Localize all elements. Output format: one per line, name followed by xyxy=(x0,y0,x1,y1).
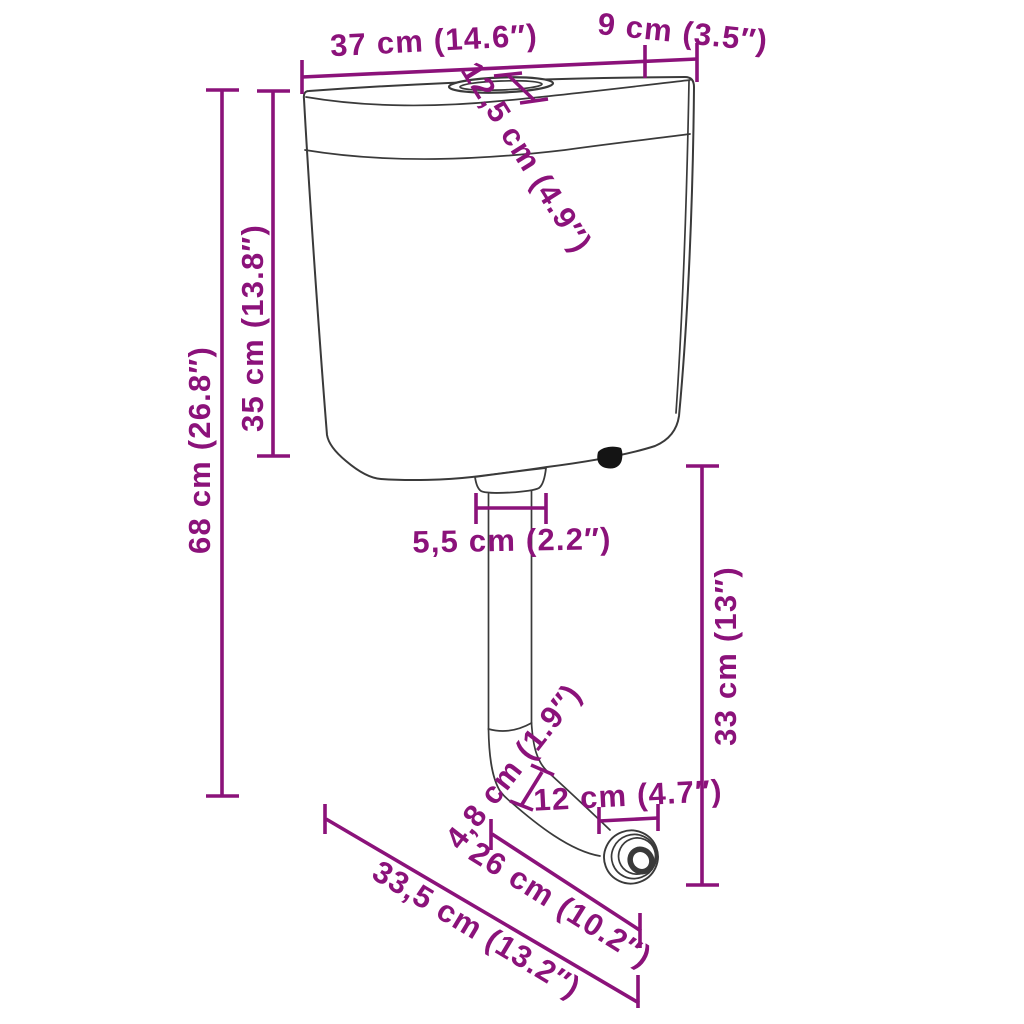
dim-lid-tick-a xyxy=(494,73,522,76)
label-tank-depth: 9 cm (3.5″) xyxy=(596,6,770,59)
label-outlet-width: 5,5 cm (2.2″) xyxy=(412,521,612,559)
diagram-canvas: 37 cm (14.6″) 9 cm (3.5″) 12,5 cm (4.9″)… xyxy=(0,0,1024,1024)
label-pipe-diameter: 4,8 cm (1.9″) xyxy=(438,677,588,856)
label-tank-height: 35 cm (13.8″) xyxy=(235,224,270,432)
side-knob[interactable] xyxy=(597,447,622,469)
dim-connector-line xyxy=(599,818,658,821)
label-connector-width: 12 cm (4.7″) xyxy=(532,773,723,818)
label-pipe-height: 33 cm (13″) xyxy=(708,566,743,746)
dimension-diagram: 37 cm (14.6″) 9 cm (3.5″) 12,5 cm (4.9″)… xyxy=(0,0,1024,1024)
label-total-height: 68 cm (26.8″) xyxy=(182,346,217,554)
outlet-connector xyxy=(597,823,666,891)
label-tank-width: 37 cm (14.6″) xyxy=(329,17,538,63)
